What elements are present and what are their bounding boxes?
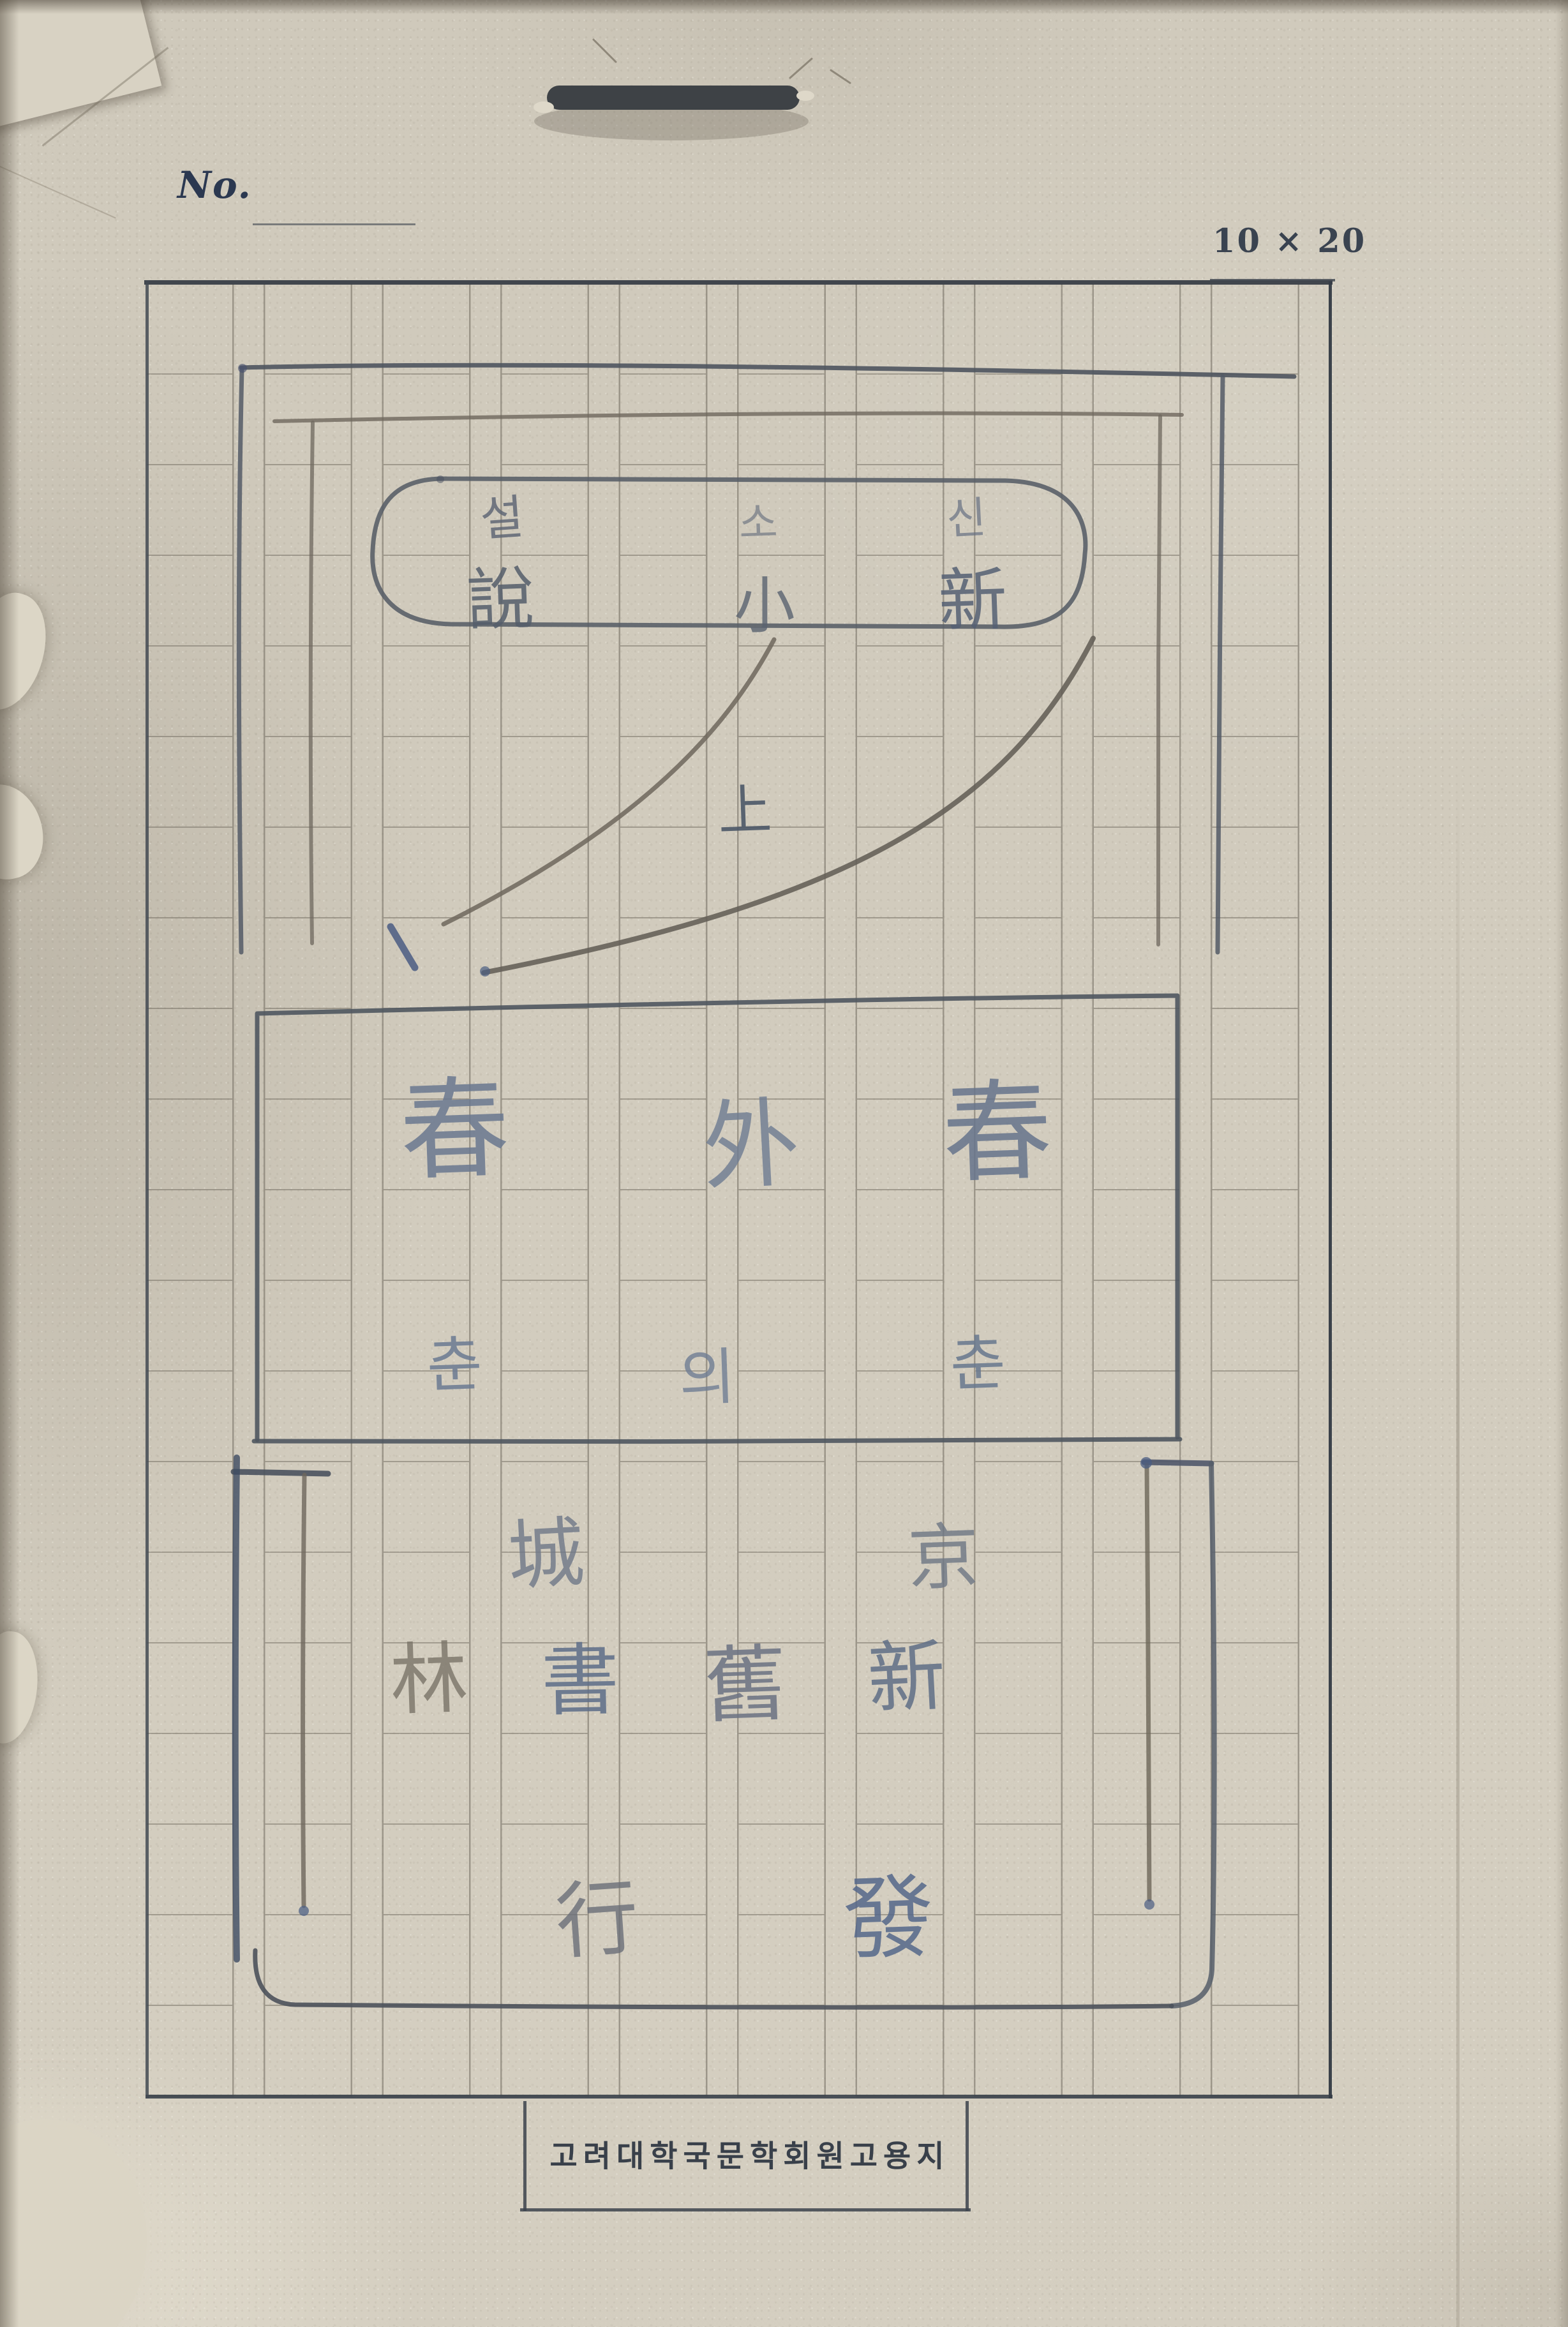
publisher-hanja-gyeong: 京 — [906, 1499, 981, 1605]
footer-box-left-bar — [523, 2101, 526, 2211]
bottom-rounded-rule — [255, 1950, 1172, 2007]
title-hanja-middle: 外 — [698, 1064, 802, 1209]
seal-hangul-sin: 신 — [945, 482, 988, 547]
seal-hangul-so: 소 — [738, 488, 779, 551]
publisher-hanja-seo: 書 — [540, 1617, 620, 1731]
title-hanja-left: 春 — [397, 1038, 512, 1202]
volume-marker: 上 — [717, 767, 773, 846]
publisher-hanja-rim: 林 — [388, 1615, 470, 1730]
publisher-hanja-gu: 舊 — [701, 1617, 788, 1739]
publisher-hanja-sin: 新 — [864, 1612, 948, 1729]
seal-hanja-sin: 新 — [936, 544, 1008, 646]
title-hangul-middle: 의 — [677, 1327, 736, 1418]
publisher-hanja-seong: 城 — [505, 1490, 587, 1605]
title-hangul-right: 춘 — [948, 1315, 1006, 1403]
footer-label: 고려대학국문학회원고용지 — [550, 2132, 950, 2176]
seal-hanja-so: 小 — [734, 557, 795, 645]
publisher-hanja-bal: 發 — [840, 1843, 936, 1978]
bottom-left-bracket — [234, 1458, 328, 1959]
footer-box-bottom-line — [520, 2208, 971, 2211]
footer-box-right-bar — [966, 2101, 969, 2211]
seal-hanja-seol: 說 — [465, 543, 535, 644]
manuscript-photo: No. 10 × 20 — [0, 0, 1568, 2327]
title-hanja-right: 春 — [939, 1041, 1055, 1204]
bottom-right-bracket — [1140, 1457, 1214, 2006]
title-hangul-left: 춘 — [425, 1316, 483, 1405]
publisher-hanja-haeng: 行 — [551, 1850, 643, 1976]
binding-slot — [534, 40, 850, 140]
seal-hangul-seol: 설 — [477, 479, 525, 550]
